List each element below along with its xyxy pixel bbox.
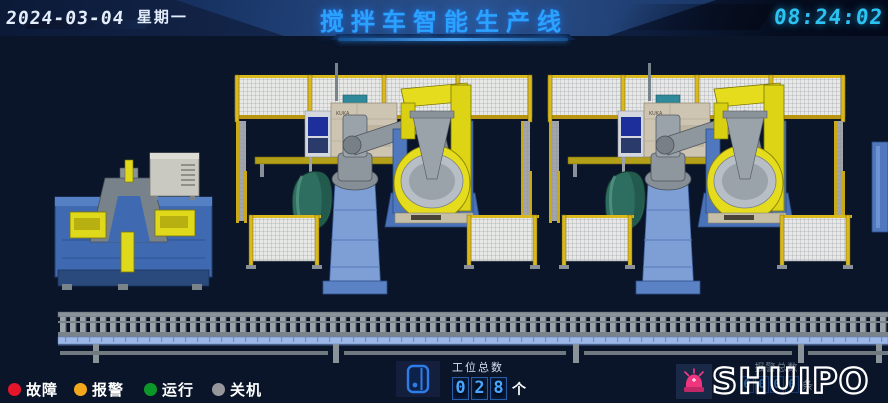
- legend-item-running: 运行: [144, 379, 194, 400]
- company-logo: SHUIPO: [712, 360, 884, 403]
- legend-label: 运行: [162, 379, 194, 400]
- station-counter-digits: 0 2 8 个: [452, 377, 526, 400]
- alarm-beacon-tile: [676, 364, 712, 399]
- factory-3d-scene: KUKA: [0, 0, 888, 403]
- legend-label: 关机: [230, 379, 262, 400]
- roller-conveyor: [58, 312, 888, 363]
- station-counter-label: 工位总数: [452, 359, 526, 375]
- station-counter: 工位总数 0 2 8 个: [452, 359, 526, 400]
- logo-text: SHUIPO: [712, 362, 869, 402]
- legend-label: 故障: [26, 379, 58, 400]
- page-title: 搅拌车智能生产线: [0, 2, 888, 37]
- off-status-dot: [212, 383, 225, 396]
- digit-box: 2: [471, 377, 488, 400]
- header-bar: 2024-03-04 星期一 搅拌车智能生产线 08:24:02: [0, 0, 888, 36]
- legend-item-alarm: 报警: [74, 379, 124, 400]
- robot-cell-2: [548, 63, 853, 294]
- clock-display: 08:24:02: [773, 5, 885, 29]
- station-counter-unit: 个: [512, 379, 526, 399]
- production-line-dashboard: KUKA: [0, 0, 888, 403]
- alarm-beacon-icon: [681, 368, 707, 396]
- robot-cell-1: [235, 63, 540, 294]
- station-counter-tile: [396, 361, 440, 397]
- hmi-panel-icon: [405, 364, 431, 394]
- legend-label: 报警: [92, 379, 124, 400]
- electrical-cabinet: [150, 153, 199, 200]
- partial-machine-right-edge: [872, 142, 888, 232]
- legend-item-fault: 故障: [8, 379, 58, 400]
- fault-status-dot: [8, 383, 21, 396]
- header-underline: [338, 38, 568, 41]
- legend-item-off: 关机: [212, 379, 262, 400]
- digit-box: 8: [490, 377, 507, 400]
- digit-box: 0: [452, 377, 469, 400]
- running-status-dot: [144, 383, 157, 396]
- alarm-status-dot: [74, 383, 87, 396]
